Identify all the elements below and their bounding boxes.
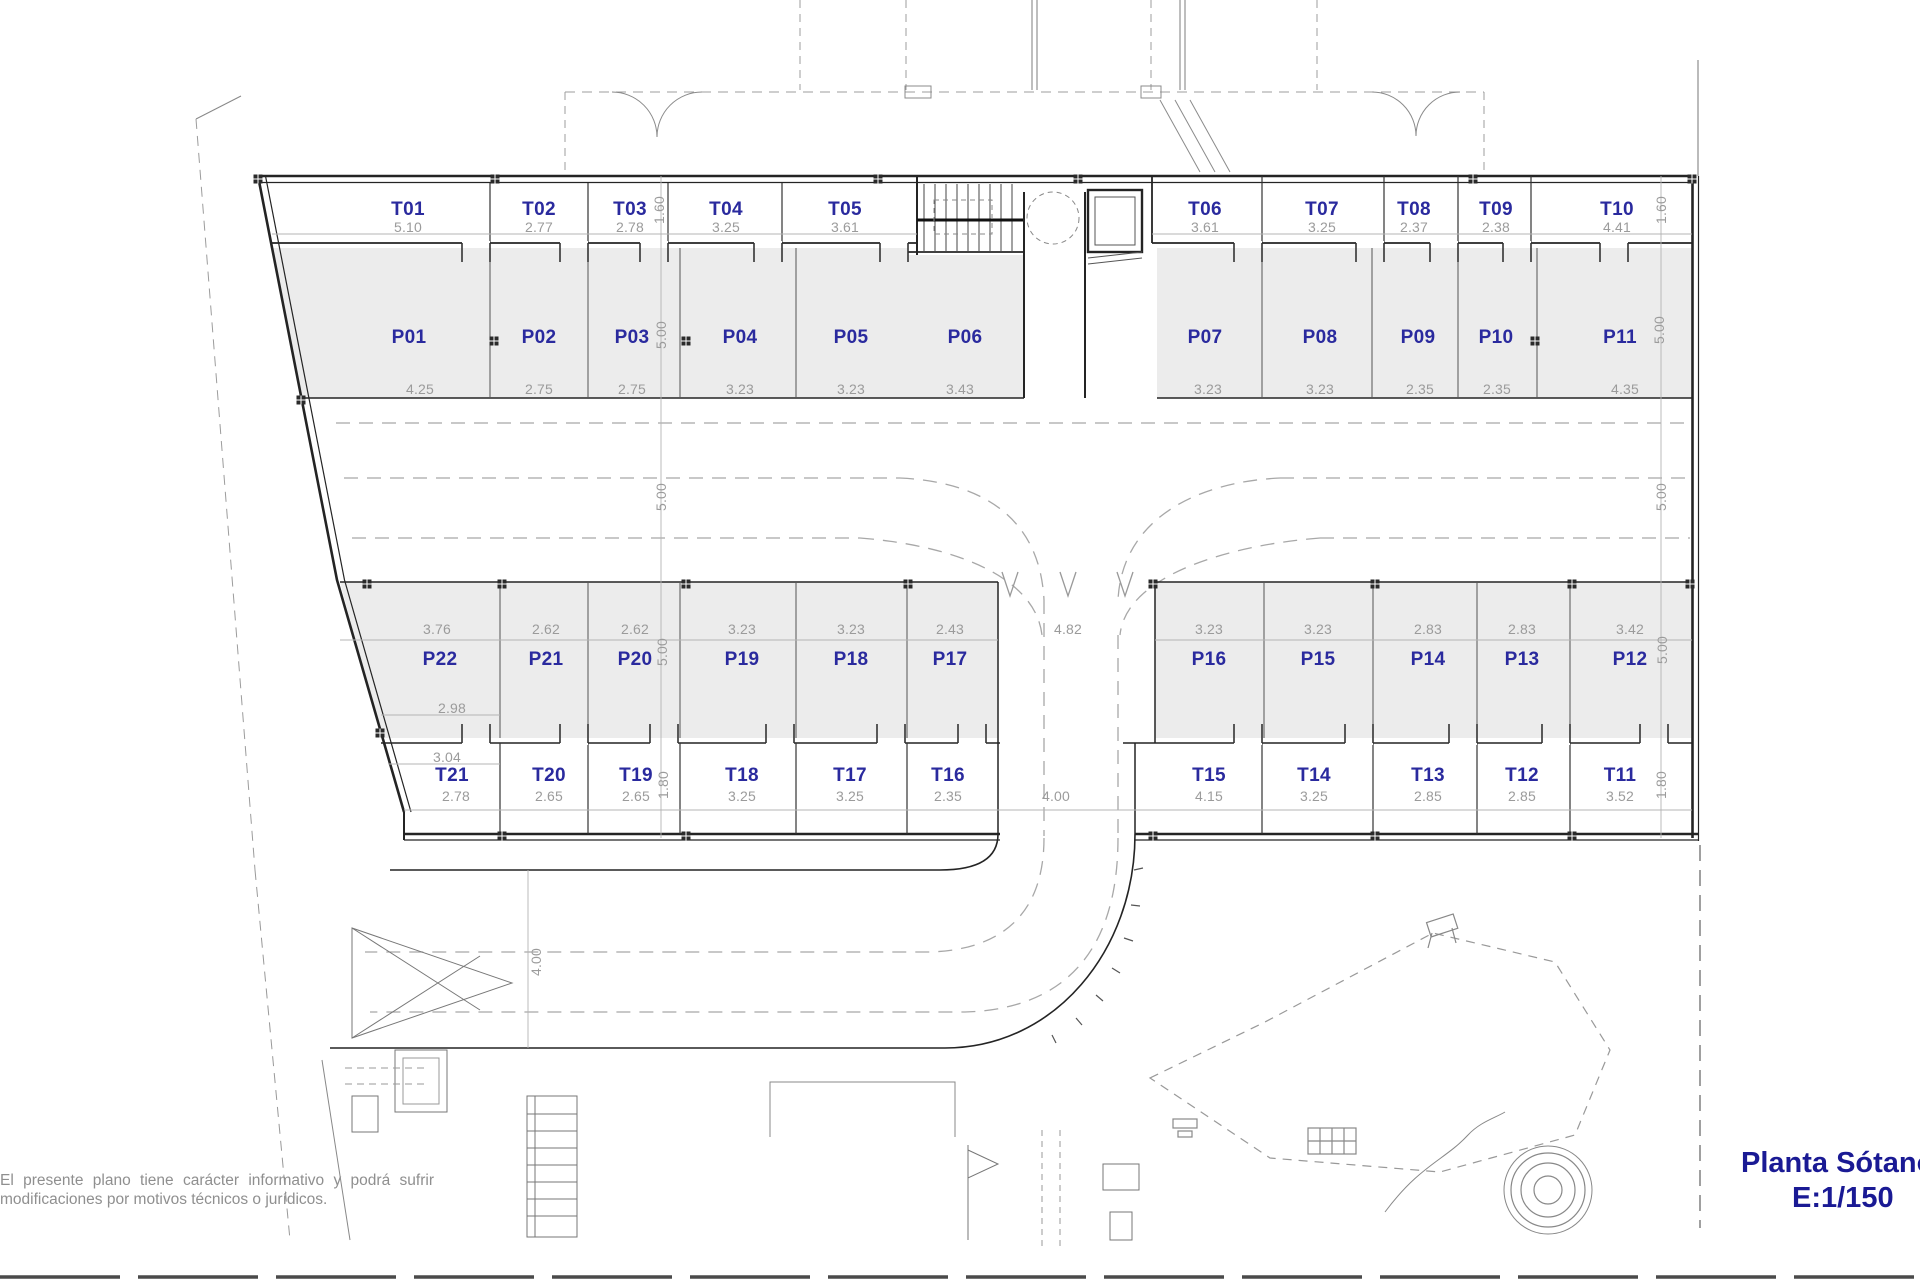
t10-dim: 4.41 <box>1603 219 1631 235</box>
p11-dim: 4.35 <box>1611 381 1639 397</box>
p08-label: P08 <box>1303 327 1338 349</box>
garden-area <box>1150 845 1700 1234</box>
p06-label: P06 <box>948 327 983 349</box>
p21-dim: 2.62 <box>532 621 560 637</box>
p22-label: P22 <box>423 649 458 671</box>
t14-label: T14 <box>1297 765 1331 787</box>
p09-dim: 2.35 <box>1406 381 1434 397</box>
t04-label: T04 <box>709 199 743 221</box>
t16-dim: 2.35 <box>934 788 962 804</box>
t03-label: T03 <box>613 199 647 221</box>
t19-dim: 2.65 <box>622 788 650 804</box>
p03-dim: 2.75 <box>618 381 646 397</box>
t21-dim: 2.78 <box>442 788 470 804</box>
p18-dim: 3.23 <box>837 621 865 637</box>
storage-depth-bottom-dim-right: 1.80 <box>1653 771 1669 799</box>
p22-front-dim: 2.98 <box>438 700 466 716</box>
p22-dim: 3.76 <box>423 621 451 637</box>
parking-depth-top-dim-left: 5.00 <box>653 321 669 349</box>
p19-dim: 3.23 <box>728 621 756 637</box>
t06-dim: 3.61 <box>1191 219 1219 235</box>
t17-dim: 3.25 <box>836 788 864 804</box>
p05-label: P05 <box>834 327 869 349</box>
t02-dim: 2.77 <box>525 219 553 235</box>
p10-label: P10 <box>1479 327 1514 349</box>
t20-label: T20 <box>532 765 566 787</box>
storage-depth-top-dim-right: 1.60 <box>1653 196 1669 224</box>
p01-label: P01 <box>392 327 427 349</box>
t12-dim: 2.85 <box>1508 788 1536 804</box>
ramp-bottom-dim: 4.82 <box>1054 621 1082 637</box>
p02-dim: 2.75 <box>525 381 553 397</box>
p05-dim: 3.23 <box>837 381 865 397</box>
t08-label: T08 <box>1397 199 1431 221</box>
t17-label: T17 <box>833 765 867 787</box>
t02-label: T02 <box>522 199 556 221</box>
p10-dim: 2.35 <box>1483 381 1511 397</box>
p15-dim: 3.23 <box>1304 621 1332 637</box>
storage-depth-bottom-dim-left: 1.80 <box>655 771 671 799</box>
t10-label: T10 <box>1600 199 1634 221</box>
t11-dim: 3.52 <box>1606 788 1634 804</box>
p09-label: P09 <box>1401 327 1436 349</box>
p04-label: P04 <box>723 327 758 349</box>
parking-depth-bottom-dim-right: 5.00 <box>1654 636 1670 664</box>
t15-label: T15 <box>1192 765 1226 787</box>
p20-label: P20 <box>618 649 653 671</box>
t13-dim: 2.85 <box>1414 788 1442 804</box>
t09-dim: 2.38 <box>1482 219 1510 235</box>
aisle-width-dim-left: 5.00 <box>653 483 669 511</box>
t19-label: T19 <box>619 765 653 787</box>
storage-depth-top-dim-left: 1.60 <box>651 196 667 224</box>
t21-label: T21 <box>435 765 469 787</box>
p12-label: P12 <box>1613 649 1648 671</box>
t09-label: T09 <box>1479 199 1513 221</box>
t03-dim: 2.78 <box>616 219 644 235</box>
t06-label: T06 <box>1188 199 1222 221</box>
aisle-width-dim-right: 5.00 <box>1653 483 1669 511</box>
p15-label: P15 <box>1301 649 1336 671</box>
disclaimer-note: El presente plano tiene carácter informa… <box>0 1172 434 1210</box>
floor-plan-linework <box>0 0 1920 1280</box>
t08-dim: 2.37 <box>1400 219 1428 235</box>
p13-dim: 2.83 <box>1508 621 1536 637</box>
t05-dim: 3.61 <box>831 219 859 235</box>
p17-dim: 2.43 <box>936 621 964 637</box>
parking-depth-bottom-dim-left: 5.00 <box>654 638 670 666</box>
parking-stall-fills <box>272 248 1692 738</box>
t16-label: T16 <box>931 765 965 787</box>
p07-label: P07 <box>1188 327 1223 349</box>
basement-floor-plan-sheet: T01 T02 T03 T04 T05 T06 T07 T08 T09 T10 … <box>0 0 1920 1280</box>
curb-hatching <box>1052 868 1143 1043</box>
p20-dim: 2.62 <box>621 621 649 637</box>
t04-dim: 3.25 <box>712 219 740 235</box>
p22-outer-dim: 3.04 <box>433 749 461 765</box>
t01-label: T01 <box>391 199 425 221</box>
p07-dim: 3.23 <box>1194 381 1222 397</box>
p01-dim: 4.25 <box>406 381 434 397</box>
t11-label: T11 <box>1604 765 1637 787</box>
t20-dim: 2.65 <box>535 788 563 804</box>
t07-label: T07 <box>1305 199 1339 221</box>
p16-dim: 3.23 <box>1195 621 1223 637</box>
p19-label: P19 <box>725 649 760 671</box>
t12-label: T12 <box>1505 765 1539 787</box>
t01-dim: 5.10 <box>394 219 422 235</box>
t13-label: T13 <box>1411 765 1445 787</box>
p12-dim: 3.42 <box>1616 621 1644 637</box>
p11-label: P11 <box>1603 327 1637 349</box>
p13-label: P13 <box>1505 649 1540 671</box>
p08-dim: 3.23 <box>1306 381 1334 397</box>
p03-label: P03 <box>615 327 650 349</box>
parking-depth-top-dim-right: 5.00 <box>1651 316 1667 344</box>
ramp-exit-dim: 4.00 <box>1042 788 1070 804</box>
p16-label: P16 <box>1192 649 1227 671</box>
t18-dim: 3.25 <box>728 788 756 804</box>
road-width-dim: 4.00 <box>528 948 544 976</box>
p06-dim: 3.43 <box>946 381 974 397</box>
t15-dim: 4.15 <box>1195 788 1223 804</box>
t05-label: T05 <box>828 199 862 221</box>
p21-label: P21 <box>529 649 564 671</box>
p18-label: P18 <box>834 649 869 671</box>
plan-scale: E:1/150 <box>1792 1182 1894 1215</box>
staircase <box>917 184 1079 252</box>
p14-dim: 2.83 <box>1414 621 1442 637</box>
p17-label: P17 <box>933 649 968 671</box>
ground-floor-overlay <box>196 0 1698 870</box>
p14-label: P14 <box>1411 649 1446 671</box>
plan-title: Planta Sótano <box>1741 1147 1920 1180</box>
p04-dim: 3.23 <box>726 381 754 397</box>
t14-dim: 3.25 <box>1300 788 1328 804</box>
t07-dim: 3.25 <box>1308 219 1336 235</box>
p02-label: P02 <box>522 327 557 349</box>
t18-label: T18 <box>725 765 759 787</box>
